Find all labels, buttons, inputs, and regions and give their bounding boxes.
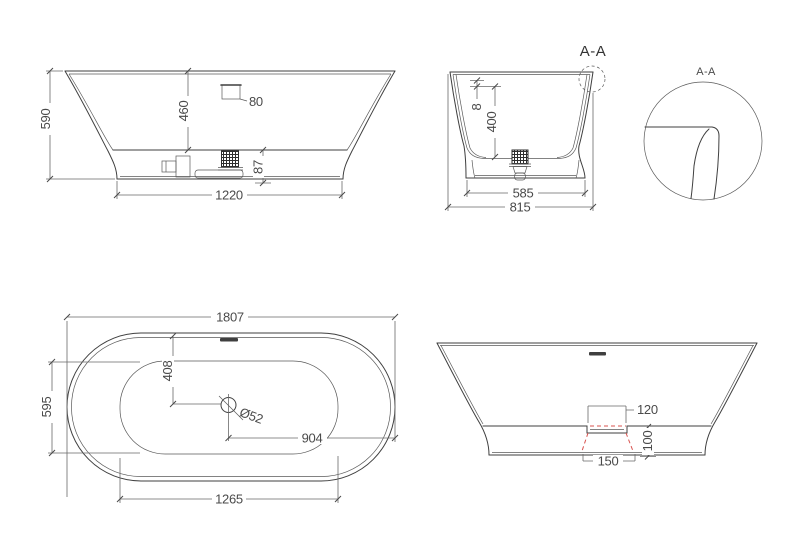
dim-8-label: 8 bbox=[469, 103, 484, 110]
waste-trap bbox=[513, 167, 527, 174]
overflow-leader bbox=[240, 99, 247, 101]
dim-590-label: 590 bbox=[38, 109, 53, 130]
drain-hatch-block bbox=[222, 151, 239, 167]
dim-87-label: 87 bbox=[251, 160, 266, 174]
recess-hidden-right bbox=[626, 433, 633, 451]
overflow-slot bbox=[589, 352, 606, 356]
plan-view: 1807 595 408 Ø52 904 1265 bbox=[39, 310, 398, 507]
waste-nozzle bbox=[162, 161, 176, 172]
left-wall-inner bbox=[69, 74, 113, 150]
right-wall-outer bbox=[705, 343, 757, 455]
dim-1807-label: 1807 bbox=[216, 310, 244, 325]
side-view-dimensions: 590 460 80 87 1220 bbox=[38, 68, 345, 203]
rim-inner-face bbox=[691, 129, 709, 199]
bathtub-dimension-drawing: 590 460 80 87 1220 bbox=[0, 0, 800, 539]
recess-hidden-left bbox=[582, 433, 588, 451]
dim-904-label: 904 bbox=[302, 431, 323, 446]
dim-585-label: 585 bbox=[513, 186, 534, 201]
waste-assembly bbox=[162, 151, 243, 178]
dim-400-label: 400 bbox=[484, 112, 499, 133]
drain-flange bbox=[218, 168, 243, 171]
cutout-side-view: 120 100 150 bbox=[437, 343, 757, 469]
right-foot-inner bbox=[576, 160, 579, 178]
detail-view: A-A bbox=[644, 66, 762, 200]
side-elevation-view: 590 460 80 87 1220 bbox=[38, 68, 395, 203]
end-section-dimensions: 8 400 585 815 bbox=[445, 74, 596, 215]
dim-120-lines bbox=[588, 406, 634, 423]
dim-diameter-label: Ø52 bbox=[238, 404, 265, 426]
rim-outer-face bbox=[712, 127, 719, 199]
detail-title: A-A bbox=[696, 66, 716, 78]
plan-view-dimensions: 1807 595 408 Ø52 904 1265 bbox=[39, 310, 398, 507]
dim-80-label: 80 bbox=[249, 94, 263, 109]
right-wall-inner bbox=[711, 346, 753, 425]
overflow-square bbox=[222, 85, 240, 99]
technical-drawing-sheet: 590 460 80 87 1220 bbox=[0, 0, 800, 539]
dim-590-lines bbox=[46, 71, 115, 179]
inner-rim-oval bbox=[72, 338, 391, 477]
right-wall-outer bbox=[343, 71, 395, 179]
waste-cap bbox=[515, 173, 526, 180]
detail-circle bbox=[644, 82, 762, 200]
dim-1807-lines bbox=[67, 317, 395, 497]
dim-408-label: 408 bbox=[160, 361, 175, 382]
right-wall-inner bbox=[347, 74, 391, 150]
outer-rim-oval bbox=[67, 333, 395, 481]
dim-460-label: 460 bbox=[176, 101, 191, 122]
left-wall-inner bbox=[441, 346, 483, 425]
dim-815-label: 815 bbox=[510, 200, 531, 215]
left-wall-inner-2 bbox=[456, 75, 486, 158]
drain-hatch-block bbox=[512, 150, 528, 164]
overflow-slot bbox=[220, 338, 238, 342]
dim-100-label: 100 bbox=[640, 431, 655, 452]
dim-595-label: 595 bbox=[39, 397, 54, 418]
end-section-view: A-A 8 400 585 815 bbox=[445, 43, 606, 215]
dim-1265-label: 1265 bbox=[215, 492, 243, 507]
left-wall-outer bbox=[65, 71, 117, 179]
left-foot-inner bbox=[472, 160, 475, 178]
dim-1220-label: 1220 bbox=[215, 188, 243, 203]
left-wall-outer bbox=[437, 343, 489, 455]
right-wall-inner-2 bbox=[557, 75, 587, 158]
right-wall-outer bbox=[579, 72, 593, 178]
waste-riser bbox=[176, 156, 190, 177]
dim-120-label: 120 bbox=[637, 402, 658, 417]
overflow-symbol bbox=[221, 85, 247, 101]
dim-150-label: 150 bbox=[598, 454, 619, 469]
dim-595-lines bbox=[48, 362, 140, 453]
dim-408-lines bbox=[173, 336, 221, 404]
section-label: A-A bbox=[580, 43, 607, 60]
cutout-view-dimensions: 120 100 150 bbox=[583, 402, 658, 469]
